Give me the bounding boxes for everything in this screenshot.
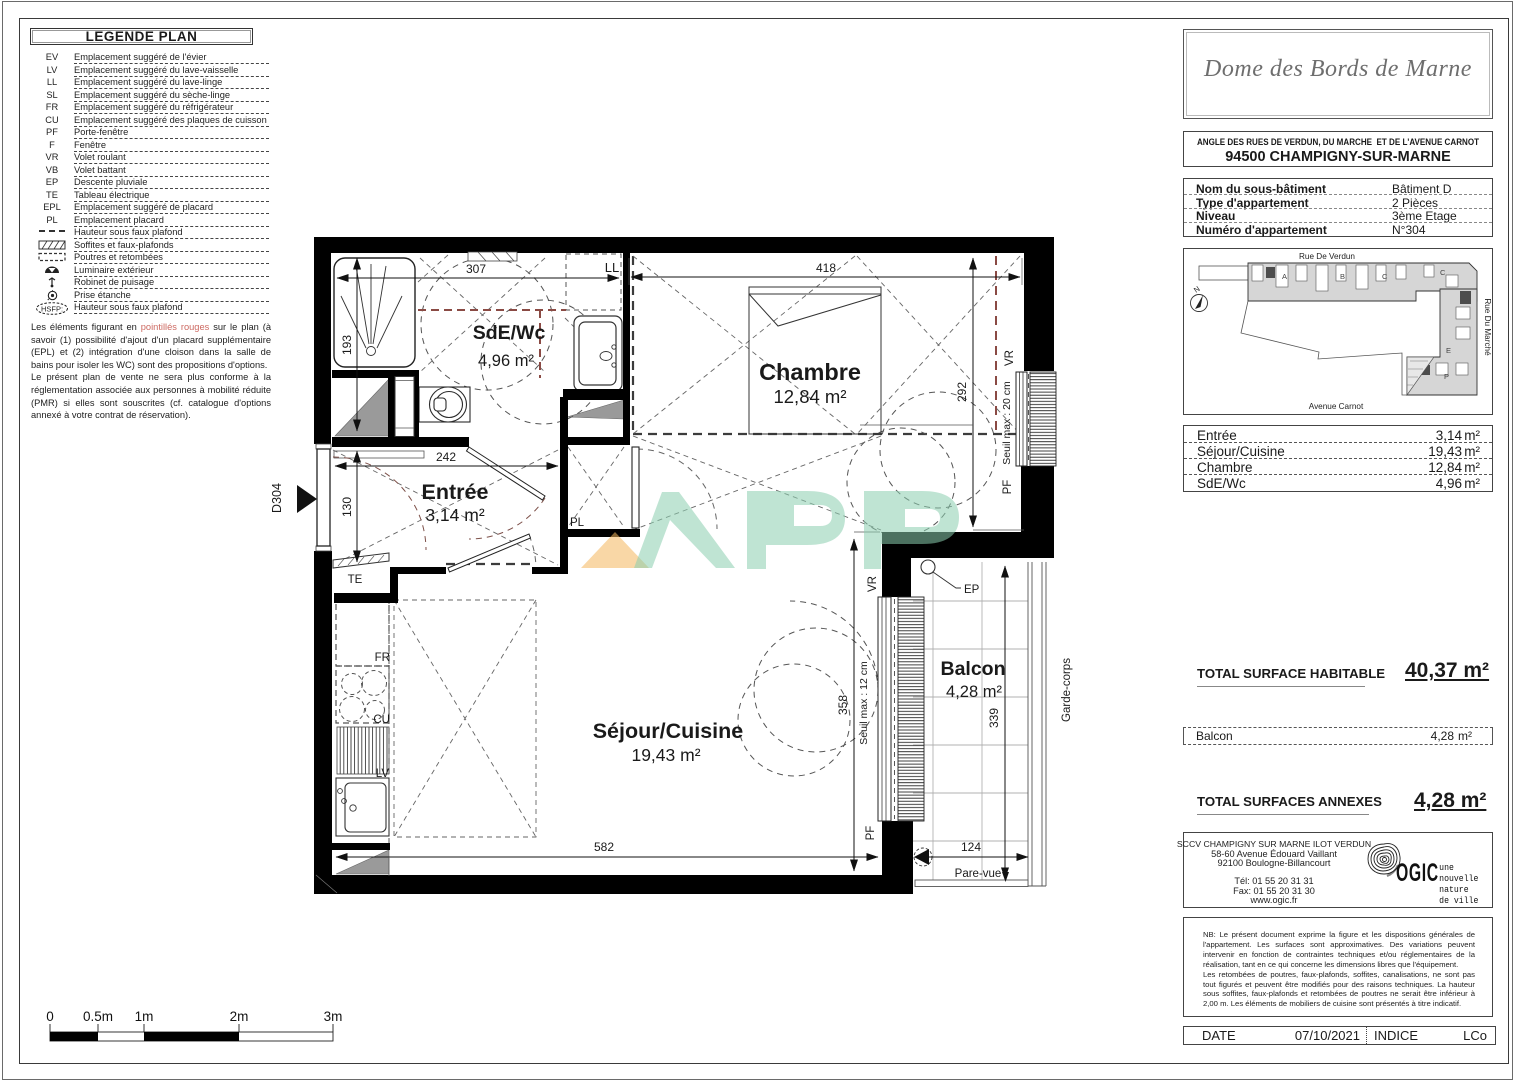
svg-text:nature: nature (1439, 885, 1468, 895)
svg-text:E: E (1446, 346, 1451, 355)
svg-text:Avenue Carnot: Avenue Carnot (1309, 402, 1364, 411)
svg-text:Rue Du Marché: Rue Du Marché (1483, 298, 1492, 356)
svg-text:Rue De Verdun: Rue De Verdun (1299, 252, 1355, 261)
svg-text:HSFP:: HSFP: (41, 304, 63, 313)
svg-text:P: P (1444, 372, 1449, 381)
svg-text:C: C (1440, 268, 1446, 277)
svg-text:une: une (1439, 863, 1454, 873)
svg-text:A: A (1282, 272, 1287, 281)
svg-text:OGIC: OGIC (1396, 859, 1439, 887)
svg-text:N: N (1192, 284, 1202, 294)
svg-text:nouvelle: nouvelle (1439, 874, 1478, 884)
svg-text:de ville: de ville (1439, 896, 1478, 905)
svg-text:C: C (1382, 272, 1388, 281)
svg-text:B: B (1340, 272, 1345, 281)
